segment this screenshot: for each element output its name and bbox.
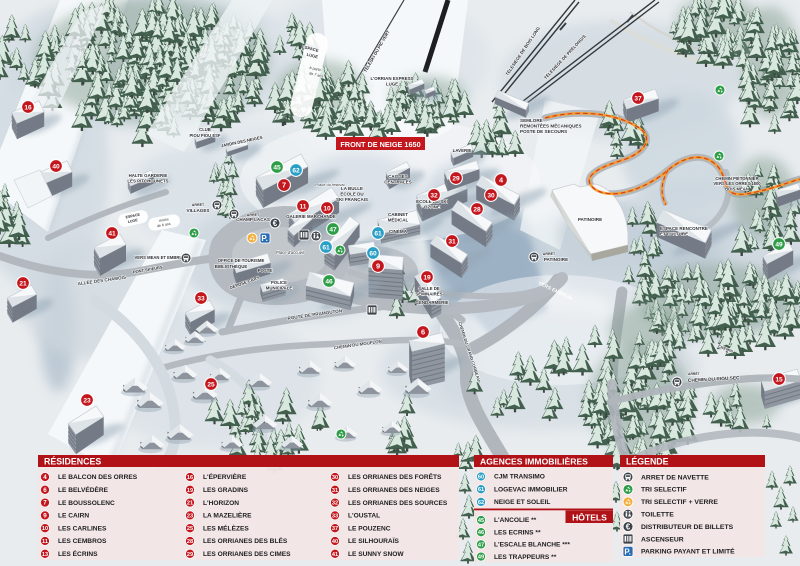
svg-text:ÉCOLE DU: ÉCOLE DU [340, 190, 363, 197]
svg-text:VILLAGES: VILLAGES [187, 208, 210, 213]
svg-text:4: 4 [43, 474, 47, 481]
svg-text:L'ÉPERVIÈRE: L'ÉPERVIÈRE [203, 472, 247, 481]
svg-text:25: 25 [207, 382, 215, 389]
svg-text:TRI SELECTIF: TRI SELECTIF [641, 487, 687, 494]
svg-text:SÉMINAIRES: SÉMINAIRES [415, 291, 442, 296]
svg-text:9: 9 [43, 512, 47, 519]
svg-text:ASCENSEUR: ASCENSEUR [641, 536, 684, 543]
svg-text:46: 46 [325, 279, 333, 286]
svg-text:CENTRALES: CENTRALES [384, 180, 412, 185]
svg-text:45: 45 [273, 165, 281, 172]
svg-text:6: 6 [421, 328, 425, 337]
svg-text:LE BOUSSOLENC: LE BOUSSOLENC [58, 500, 115, 507]
svg-text:LÉGENDE: LÉGENDE [626, 457, 669, 467]
svg-text:LE BALCON DES ORRES: LE BALCON DES ORRES [58, 474, 138, 481]
svg-text:LES PITCHOUNETS: LES PITCHOUNETS [127, 178, 168, 183]
svg-text:Place du festival: Place du festival [315, 182, 344, 187]
svg-text:POLICE: POLICE [271, 280, 287, 285]
svg-text:ARRET DE NAVETTE: ARRET DE NAVETTE [641, 474, 709, 481]
svg-text:VERS MEAN ET EMBRUN: VERS MEAN ET EMBRUN [135, 255, 186, 260]
svg-text:CINÉMA: CINÉMA [389, 227, 408, 234]
svg-text:49: 49 [775, 242, 783, 249]
svg-text:21: 21 [187, 501, 193, 507]
svg-text:CLUB: CLUB [199, 127, 211, 132]
svg-text:41: 41 [332, 552, 338, 558]
svg-text:30: 30 [332, 475, 338, 481]
svg-text:13: 13 [42, 552, 48, 558]
svg-text:LES ORRIANES DES FORÊTS: LES ORRIANES DES FORÊTS [348, 472, 442, 481]
svg-text:CJM TRANSIMO: CJM TRANSIMO [494, 474, 545, 481]
svg-text:LES ORRIANES DES NEIGES: LES ORRIANES DES NEIGES [348, 487, 440, 494]
svg-text:LES CARLINES: LES CARLINES [58, 525, 107, 532]
svg-text:PATINOIRE: PATINOIRE [544, 257, 568, 262]
svg-text:BOIS MÉAN: BOIS MÉAN [725, 186, 749, 191]
svg-text:61: 61 [478, 487, 484, 493]
svg-text:61: 61 [322, 245, 330, 252]
svg-text:29: 29 [452, 176, 460, 183]
svg-text:62: 62 [478, 500, 484, 506]
svg-text:SKI FRANÇAIS: SKI FRANÇAIS [336, 197, 368, 202]
svg-text:37: 37 [332, 526, 338, 532]
svg-text:LES ORRIANES DES BLÉS: LES ORRIANES DES BLÉS [203, 536, 288, 545]
svg-text:GENDARMERIE: GENDARMERIE [416, 300, 449, 305]
svg-text:POSTE DE SECOURS: POSTE DE SECOURS [520, 129, 567, 134]
svg-text:MÉDICAL: MÉDICAL [388, 216, 409, 223]
svg-text:LA MAZELIÈRE: LA MAZELIÈRE [203, 511, 252, 520]
svg-text:L'ESCALE BLANCHE ***: L'ESCALE BLANCHE *** [494, 542, 570, 549]
svg-text:33: 33 [332, 513, 338, 519]
svg-text:62: 62 [292, 168, 300, 175]
svg-text:LE SILHOURAÏS: LE SILHOURAÏS [348, 537, 400, 545]
svg-text:MUNICIPALE: MUNICIPALE [266, 285, 293, 290]
svg-text:31: 31 [332, 488, 338, 494]
svg-text:15: 15 [775, 377, 783, 384]
svg-text:16: 16 [187, 475, 193, 481]
svg-text:PIOU PIOU ESF: PIOU PIOU ESF [190, 133, 221, 138]
svg-text:CHAMP LACAS: CHAMP LACAS [236, 217, 270, 222]
svg-text:NEIGE ET SOLEIL: NEIGE ET SOLEIL [494, 499, 550, 506]
svg-text:TRI SELECTIF + VERRE: TRI SELECTIF + VERRE [641, 499, 718, 506]
svg-text:ARRÊT: ARRÊT [192, 202, 205, 207]
svg-text:Place d'accueil: Place d'accueil [276, 250, 304, 255]
svg-text:11: 11 [42, 539, 48, 545]
svg-text:REMONTÉES MÉCANIQUES: REMONTÉES MÉCANIQUES [520, 122, 582, 129]
svg-text:RÉSIDENCES: RÉSIDENCES [44, 457, 101, 467]
svg-text:23: 23 [83, 398, 91, 405]
svg-text:TOILETTE: TOILETTE [641, 512, 674, 519]
svg-text:LES ECRINS **: LES ECRINS ** [494, 529, 541, 536]
svg-text:PARKING PAYANT ET LIMITÉ: PARKING PAYANT ET LIMITÉ [641, 547, 735, 556]
svg-text:21: 21 [19, 281, 27, 288]
svg-text:SALLE DE: SALLE DE [418, 286, 440, 291]
svg-text:45: 45 [478, 518, 484, 524]
svg-text:LE BELVÉDÈRE: LE BELVÉDÈRE [58, 485, 109, 494]
svg-text:ET CULTURE: ET CULTURE [660, 232, 688, 237]
svg-text:HÔTELS: HÔTELS [572, 511, 607, 522]
svg-text:HALTE GARDERIE: HALTE GARDERIE [129, 173, 168, 178]
svg-text:LES GRADINS: LES GRADINS [203, 487, 249, 494]
svg-text:32: 32 [430, 193, 438, 200]
svg-text:10: 10 [42, 526, 48, 532]
svg-text:40: 40 [332, 539, 338, 545]
svg-text:PATINOIRE: PATINOIRE [578, 217, 602, 222]
svg-text:37: 37 [634, 96, 642, 103]
svg-text:30: 30 [487, 193, 495, 200]
svg-text:FRONT DE NEIGE 1650: FRONT DE NEIGE 1650 [340, 140, 420, 149]
svg-text:28: 28 [187, 539, 193, 545]
svg-text:28: 28 [473, 207, 481, 214]
svg-text:...: ... [204, 339, 207, 343]
svg-text:11: 11 [300, 204, 307, 211]
svg-text:47: 47 [478, 542, 484, 548]
svg-text:LOGEVAC IMMOBILIER: LOGEVAC IMMOBILIER [494, 486, 568, 493]
svg-text:60: 60 [478, 475, 484, 481]
svg-text:LUGE: LUGE [386, 81, 398, 86]
svg-text:23: 23 [187, 513, 193, 519]
svg-text:L'OUSTAL: L'OUSTAL [348, 513, 380, 520]
svg-text:ARRÊT: ARRÊT [688, 371, 701, 376]
svg-text:L'ORRIAN EXPRESS: L'ORRIAN EXPRESS [370, 76, 413, 81]
svg-text:ESPACE RENCONTRE: ESPACE RENCONTRE [660, 226, 708, 231]
svg-text:33: 33 [197, 296, 205, 303]
svg-text:CAISSES: CAISSES [388, 174, 408, 179]
svg-text:L'ANCOLIE **: L'ANCOLIE ** [494, 517, 537, 524]
svg-text:LES ORRIANES DES SOURCES: LES ORRIANES DES SOURCES [348, 500, 448, 507]
svg-text:LES MÉLÈZES: LES MÉLÈZES [203, 523, 249, 532]
svg-text:32: 32 [332, 501, 338, 507]
svg-text:LAVERIE: LAVERIE [453, 148, 472, 153]
svg-text:LE CAIRN: LE CAIRN [58, 513, 89, 520]
svg-text:19: 19 [423, 275, 431, 282]
svg-text:CABINET: CABINET [388, 212, 408, 217]
svg-text:31: 31 [448, 239, 456, 246]
svg-text:OFFICE DE TOURISME: OFFICE DE TOURISME [218, 258, 265, 263]
svg-text:19: 19 [187, 488, 193, 494]
svg-text:LE SUNNY SNOW: LE SUNNY SNOW [348, 551, 404, 558]
svg-text:LES CEMBROS: LES CEMBROS [58, 538, 107, 545]
svg-text:ARRÊT: ARRÊT [543, 251, 556, 256]
svg-text:LES ÉCRINS: LES ÉCRINS [58, 549, 98, 558]
svg-text:29: 29 [187, 552, 193, 558]
svg-text:SEMLORE: SEMLORE [520, 118, 543, 123]
svg-text:DISTRIBUTEUR DE BILLETS: DISTRIBUTEUR DE BILLETS [641, 524, 734, 531]
svg-text:41: 41 [108, 231, 116, 238]
svg-text:9: 9 [376, 262, 380, 271]
svg-text:49: 49 [478, 555, 484, 561]
svg-text:7: 7 [43, 500, 47, 507]
svg-text:LE POUZENC: LE POUZENC [348, 525, 391, 532]
svg-text:25: 25 [187, 526, 193, 532]
svg-text:LES ORRIANES DES CIMES: LES ORRIANES DES CIMES [203, 551, 291, 558]
svg-text:L'HORIZON: L'HORIZON [203, 500, 239, 507]
svg-text:60: 60 [369, 251, 377, 258]
svg-text:10: 10 [323, 206, 331, 213]
svg-text:7: 7 [282, 181, 286, 190]
svg-text:6: 6 [43, 487, 47, 494]
svg-text:OZONE: OZONE [424, 205, 440, 210]
svg-text:16: 16 [24, 105, 32, 112]
svg-text:46: 46 [478, 530, 484, 536]
svg-text:LES TRAPPEURS **: LES TRAPPEURS ** [494, 554, 557, 561]
svg-text:47: 47 [329, 227, 337, 234]
svg-text:BIBLIOTHÈQUE: BIBLIOTHÈQUE [215, 264, 248, 269]
svg-text:POSTE: POSTE [258, 268, 273, 273]
svg-text:40: 40 [52, 164, 60, 171]
svg-text:AGENCES IMMOBILIÈRES: AGENCES IMMOBILIÈRES [480, 457, 588, 467]
svg-text:61: 61 [374, 231, 382, 238]
